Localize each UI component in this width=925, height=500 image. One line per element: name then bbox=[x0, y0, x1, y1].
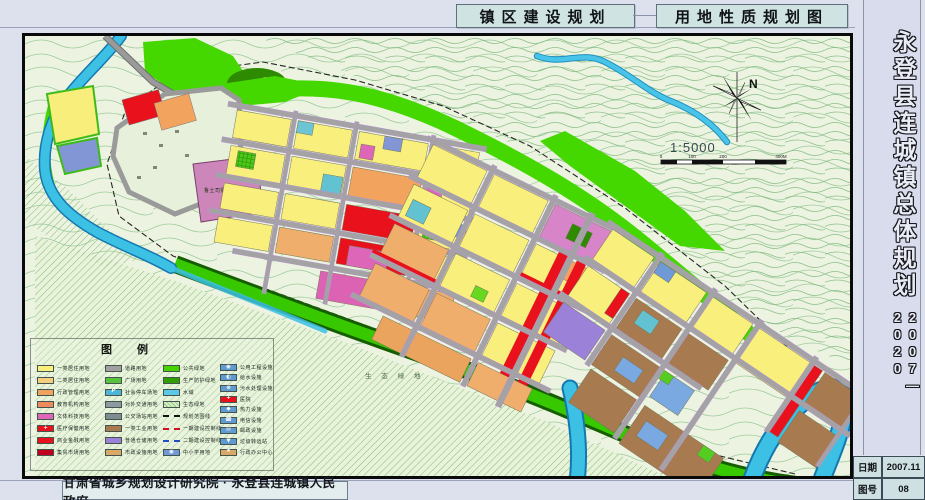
legend-label: 对外交通用地 bbox=[125, 401, 158, 408]
plan-sheet: 镇区建设规划 用地性质规划图 bbox=[0, 0, 925, 500]
legend-label: 给水设施 bbox=[240, 374, 262, 381]
legend-entry: +医院 bbox=[220, 394, 273, 405]
legend-entry: 一类居住用地 bbox=[37, 362, 90, 374]
legend-column-4: ◉公用工程设施 ◐给水设施 ⊗污水处理设施 +医院 ◆热力设施 ☎电信设施 ✉邮… bbox=[220, 362, 273, 457]
legend-entry: 一期建设控制线 bbox=[163, 422, 222, 434]
legend-entry: 一类工业用地 bbox=[105, 422, 158, 434]
legend-entry: ▼垃圾转运站 bbox=[220, 436, 273, 447]
svg-text:200: 200 bbox=[719, 154, 727, 159]
legend-entry: ✉邮政设施 bbox=[220, 426, 273, 437]
legend-entry: ◉中小学用地 bbox=[163, 447, 222, 459]
legend-swatch bbox=[37, 449, 54, 456]
legend-swatch bbox=[37, 437, 54, 444]
legend-label: 二期建设控制线 bbox=[183, 437, 222, 444]
title-connector bbox=[633, 15, 656, 16]
legend-entry: 普通仓储用地 bbox=[105, 435, 158, 447]
legend-label: 生产防护绿地 bbox=[183, 377, 216, 384]
legend-label: 一期建设控制线 bbox=[183, 425, 222, 432]
sidebar-panel: 永登县连城镇总体规划 2007—2020 bbox=[863, 0, 921, 455]
legend-swatch bbox=[163, 428, 180, 430]
legend-swatch: + bbox=[37, 425, 54, 432]
legend-entry: 道路用地 bbox=[105, 362, 158, 374]
legend-entry: 公交场站用地 bbox=[105, 410, 158, 422]
title-sidebar: 永登县连城镇总体规划 2007—2020 日期 2007.11 图号 08 bbox=[855, 0, 925, 500]
legend-entry: ⊗污水处理设施 bbox=[220, 383, 273, 394]
legend-entry: ◐给水设施 bbox=[220, 373, 273, 384]
sheet-number-value: 08 bbox=[882, 478, 925, 500]
legend-label: 道路用地 bbox=[125, 365, 147, 372]
legend-swatch bbox=[163, 401, 180, 408]
legend-label: 公共绿地 bbox=[183, 365, 205, 372]
legend-label: 市政设施用地 bbox=[125, 449, 158, 456]
date-value: 2007.11 bbox=[882, 456, 925, 478]
legend-swatch bbox=[37, 377, 54, 384]
legend-title: 图 例 bbox=[101, 341, 159, 357]
legend-entry: 商业金融用地 bbox=[37, 435, 90, 447]
legend-entry: 规划范围线 bbox=[163, 410, 222, 422]
legend-swatch: ◉ bbox=[220, 364, 237, 371]
legend-label: 生态绿地 bbox=[183, 401, 205, 408]
legend-label: 行政管理用地 bbox=[57, 389, 90, 396]
svg-text:400M: 400M bbox=[775, 154, 787, 159]
legend-entry: ◉公用工程设施 bbox=[220, 362, 273, 373]
legend-label: 一类居住用地 bbox=[57, 365, 90, 372]
legend-entry: 生产防护绿地 bbox=[163, 374, 222, 386]
legend-swatch bbox=[163, 377, 180, 384]
legend: 图 例 一类居住用地 二类居住用地 行政管理用地 教育机构用地 文体科技用地 +… bbox=[30, 338, 274, 471]
legend-swatch bbox=[105, 365, 122, 372]
legend-entry: P社会停车场地 bbox=[105, 386, 158, 398]
legend-swatch bbox=[163, 415, 180, 417]
legend-swatch bbox=[105, 437, 122, 444]
sheet-number-label: 图号 bbox=[853, 478, 882, 500]
legend-entry: 对外交通用地 bbox=[105, 398, 158, 410]
legend-swatch: P bbox=[105, 389, 122, 396]
legend-label: 商业金融用地 bbox=[57, 437, 90, 444]
legend-entry: ☎电信设施 bbox=[220, 415, 273, 426]
legend-label: 水域 bbox=[183, 389, 194, 396]
legend-entry: 广场用地 bbox=[105, 374, 158, 386]
legend-swatch bbox=[105, 449, 122, 456]
legend-swatch: + bbox=[220, 396, 237, 403]
legend-swatch bbox=[37, 365, 54, 372]
legend-label: 垃圾转运站 bbox=[240, 438, 268, 445]
sheet-years-vertical: 2007—2020 bbox=[864, 310, 920, 455]
legend-label: 社会停车场地 bbox=[125, 389, 158, 396]
legend-entry: ◆热力设施 bbox=[220, 404, 273, 415]
legend-label: 医院 bbox=[240, 396, 251, 403]
legend-label: 公交场站用地 bbox=[125, 413, 158, 420]
legend-swatch: ⊗ bbox=[220, 385, 237, 392]
legend-entry: 教育机构用地 bbox=[37, 398, 90, 410]
map-frame: 鲁土司衙门 bbox=[22, 33, 853, 479]
legend-swatch bbox=[105, 401, 122, 408]
legend-entry: 市政设施用地 bbox=[105, 447, 158, 459]
legend-swatch: ★ bbox=[220, 449, 237, 456]
legend-label: 电信设施 bbox=[240, 417, 262, 424]
legend-swatch: ◉ bbox=[163, 449, 180, 456]
legend-entry: 集贸市场用地 bbox=[37, 447, 90, 459]
title-right: 用地性质规划图 bbox=[656, 4, 848, 28]
north-label: N bbox=[749, 77, 758, 91]
svg-text:100: 100 bbox=[688, 154, 696, 159]
scale-text: 1:5000 bbox=[670, 140, 716, 155]
legend-label: 中小学用地 bbox=[183, 449, 211, 456]
title-block: 日期 2007.11 图号 08 bbox=[853, 456, 925, 500]
legend-entry: 文体科技用地 bbox=[37, 410, 90, 422]
legend-entry: ★行政办公中心 bbox=[220, 447, 273, 458]
legend-swatch: ◐ bbox=[220, 374, 237, 381]
legend-swatch bbox=[37, 413, 54, 420]
legend-label: 集贸市场用地 bbox=[57, 449, 90, 456]
date-label: 日期 bbox=[853, 456, 882, 478]
legend-label: 污水处理设施 bbox=[240, 385, 273, 392]
legend-label: 教育机构用地 bbox=[57, 401, 90, 408]
legend-swatch: ◆ bbox=[220, 406, 237, 413]
legend-label: 公用工程设施 bbox=[240, 364, 273, 371]
legend-label: 普通仓储用地 bbox=[125, 437, 158, 444]
legend-swatch: ▼ bbox=[220, 438, 237, 445]
legend-entry: 行政管理用地 bbox=[37, 386, 90, 398]
legend-label: 文体科技用地 bbox=[57, 413, 90, 420]
sheet-title-vertical: 永登县连城镇总体规划 bbox=[864, 30, 920, 300]
legend-swatch bbox=[163, 389, 180, 396]
legend-label: 广场用地 bbox=[125, 377, 147, 384]
legend-entry: 二期建设控制线 bbox=[163, 435, 222, 447]
legend-label: 行政办公中心 bbox=[240, 449, 273, 456]
legend-column-3: 公共绿地 生产防护绿地 水域 生态绿地 规划范围线 一期建设控制线 二期建设控制… bbox=[163, 362, 222, 459]
legend-swatch bbox=[163, 440, 180, 442]
legend-swatch bbox=[105, 377, 122, 384]
legend-entry: 水域 bbox=[163, 386, 222, 398]
legend-swatch bbox=[37, 389, 54, 396]
credit-box: 甘肃省城乡规划设计研究院 · 永登县连城镇人民政府 bbox=[62, 481, 348, 500]
title-left: 镇区建设规划 bbox=[456, 4, 635, 28]
legend-entry: 公共绿地 bbox=[163, 362, 222, 374]
legend-label: 热力设施 bbox=[240, 406, 262, 413]
legend-swatch: ✉ bbox=[220, 427, 237, 434]
legend-label: 二类居住用地 bbox=[57, 377, 90, 384]
legend-entry: 生态绿地 bbox=[163, 398, 222, 410]
legend-swatch bbox=[163, 365, 180, 372]
legend-column-1: 一类居住用地 二类居住用地 行政管理用地 教育机构用地 文体科技用地 +医疗保健… bbox=[37, 362, 90, 459]
legend-swatch: ☎ bbox=[220, 417, 237, 424]
legend-swatch bbox=[105, 413, 122, 420]
legend-entry: 二类居住用地 bbox=[37, 374, 90, 386]
legend-label: 规划范围线 bbox=[183, 413, 211, 420]
legend-swatch bbox=[105, 425, 122, 432]
legend-swatch bbox=[37, 401, 54, 408]
legend-label: 邮政设施 bbox=[240, 427, 262, 434]
legend-label: 医疗保健用地 bbox=[57, 425, 90, 432]
legend-column-2: 道路用地 广场用地 P社会停车场地 对外交通用地 公交场站用地 一类工业用地 普… bbox=[105, 362, 158, 459]
legend-label: 一类工业用地 bbox=[125, 425, 158, 432]
eco-green-label: 生 态 绿 地 bbox=[365, 371, 424, 380]
legend-entry: +医疗保健用地 bbox=[37, 422, 90, 434]
